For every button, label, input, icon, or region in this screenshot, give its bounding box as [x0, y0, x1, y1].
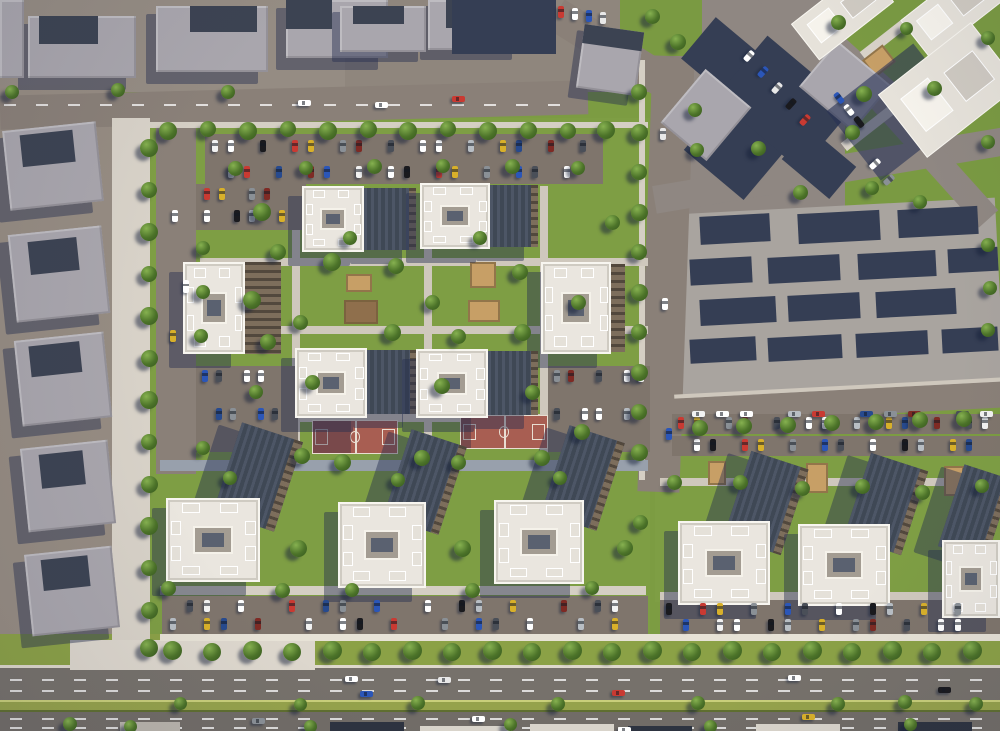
tree [275, 583, 290, 598]
parked-car-detail [436, 143, 441, 145]
parked-car-detail [249, 191, 254, 193]
parked-car [234, 210, 240, 222]
apartment-tower-row2-left-detail [308, 404, 322, 412]
car-top-road-detail [379, 103, 382, 108]
parked-car-detail [221, 621, 226, 623]
district-shadow [689, 336, 756, 363]
tree [345, 583, 359, 597]
car-boulevard-detail [622, 728, 625, 731]
district-shadow [797, 210, 880, 244]
tree [795, 481, 810, 496]
parked-car-detail [425, 603, 430, 605]
car-boulevard [438, 677, 451, 683]
car-nw-lot-detail [586, 13, 591, 15]
vertical-slab-left-detail [219, 336, 231, 347]
playground-2 [344, 300, 378, 324]
tree [617, 540, 633, 556]
playground-1 [346, 274, 372, 292]
parked-car [436, 140, 442, 152]
car-vroad-detail [660, 131, 665, 133]
apartment-tower-br-2-detail-detail [833, 558, 855, 571]
tree [363, 643, 381, 661]
parked-car [388, 140, 394, 152]
parked-car [710, 439, 716, 451]
parked-car-detail [955, 606, 960, 608]
parked-car-detail [356, 143, 361, 145]
tree [141, 434, 157, 450]
apartment-tower-row2-right-detail [457, 404, 471, 412]
car-nw-lot [572, 8, 578, 20]
apartment-tower-br-1-detail [756, 569, 767, 583]
apartment-tower-br-2-detail [851, 590, 869, 599]
tree [228, 161, 243, 176]
tree [163, 641, 182, 660]
parked-car [516, 140, 522, 152]
apartment-tower-br-1-detail [694, 526, 712, 536]
parked-car [904, 619, 910, 631]
tree [141, 476, 158, 493]
slab-row2-right-detail [531, 351, 538, 415]
car-tr-diag2-detail [873, 160, 878, 165]
parked-car-detail [595, 603, 600, 605]
parked-car-detail [887, 606, 892, 608]
tree [631, 284, 648, 301]
parked-car [854, 417, 860, 429]
parked-car-detail [306, 621, 311, 623]
parked-car-detail [734, 622, 739, 624]
parked-car-detail [391, 621, 396, 623]
tree [223, 471, 237, 485]
apartment-tower-row2-left-detail [355, 388, 363, 400]
tree [294, 698, 307, 711]
vertical-slab-left-detail-detail [207, 300, 221, 315]
parked-car-detail [612, 603, 617, 605]
apartment-tower-br-1-detail [683, 569, 694, 583]
parked-car-detail [279, 213, 284, 215]
car-nw-lot-detail [600, 15, 605, 17]
tree [411, 696, 425, 710]
parked-car-detail [548, 143, 553, 145]
parked-car-detail [404, 169, 409, 171]
tree [5, 85, 19, 99]
apartment-tower-br-3-detail [975, 603, 986, 612]
tree [843, 643, 861, 661]
tree [831, 15, 846, 30]
car-tr-diag2-detail [887, 176, 892, 181]
tree [323, 641, 342, 660]
parked-car [548, 140, 554, 152]
apartment-tower-br-2-detail [814, 590, 832, 599]
parked-car-detail [554, 411, 559, 413]
gray-building-nw-2-detail [190, 6, 257, 32]
parked-car [612, 600, 618, 612]
tree [200, 121, 216, 137]
tree [915, 485, 930, 500]
tree [203, 643, 221, 661]
parked-car [292, 140, 298, 152]
left-column-building-5 [24, 546, 120, 637]
tree [904, 718, 917, 731]
tree [571, 161, 585, 175]
apartment-tower-row2-left-detail [308, 353, 322, 361]
apartment-tower-bottom-2-detail [412, 525, 422, 540]
apartment-tower-row2-left-detail-detail [323, 377, 340, 388]
parked-car [921, 603, 927, 615]
parked-car [716, 411, 729, 417]
parked-car [717, 619, 723, 631]
car-nw-lot-detail [558, 9, 563, 11]
tree [631, 164, 647, 180]
parked-car-detail [568, 373, 573, 375]
car-nw-lot [586, 10, 592, 22]
tree [436, 159, 450, 173]
parked-car [279, 210, 285, 222]
parked-car-detail [742, 442, 747, 444]
parked-car [425, 600, 431, 612]
tree [249, 385, 263, 399]
parked-car-detail [870, 442, 875, 444]
tree [733, 475, 748, 490]
parked-car-detail [532, 169, 537, 171]
tree [293, 315, 308, 330]
tree [883, 641, 902, 660]
car-tr-lot-detail [845, 106, 850, 111]
parked-car [308, 140, 314, 152]
apartment-tower-row1-left-detail-detail [326, 214, 340, 224]
apartment-tower-bottom-3-detail [570, 523, 580, 537]
apartment-tower-br-1-detail [756, 544, 767, 558]
apartment-tower-br-2-detail [876, 546, 887, 560]
apartment-tower-row1-right-detail-detail [447, 211, 463, 221]
walk-bottom-left [70, 640, 315, 670]
district-shadow [767, 254, 840, 284]
vertical-slab-left-detail [219, 268, 231, 279]
parked-car [442, 618, 448, 630]
parked-car [717, 603, 723, 615]
parked-car-detail [500, 143, 505, 145]
apartment-tower-bottom-1-detail [220, 503, 238, 513]
rooftop-sliver [628, 726, 692, 731]
car-top-road [298, 100, 311, 106]
parked-car-detail [324, 169, 329, 171]
tree [196, 285, 210, 299]
parked-car-detail [785, 606, 790, 608]
parked-car [870, 603, 876, 615]
tree [451, 329, 466, 344]
tree [63, 717, 77, 731]
vertical-slab-right-detail [581, 336, 594, 347]
tree [981, 238, 995, 252]
tree [956, 411, 972, 427]
parked-car [980, 411, 993, 417]
parked-car-detail [493, 621, 498, 623]
apartment-tower-br-1-detail-detail [713, 556, 735, 570]
tree [454, 540, 471, 557]
car-boulevard [472, 716, 485, 722]
parked-car-detail [357, 621, 362, 623]
parked-car [340, 618, 346, 630]
tree [360, 121, 377, 138]
vertical-slab-left-detail [235, 315, 242, 331]
apartment-tower-bottom-3-detail [546, 505, 563, 515]
parked-car-detail [838, 442, 843, 444]
gray-building-nw-3-detail [286, 0, 332, 29]
parked-car-detail [340, 621, 345, 623]
parked-car-detail [864, 412, 867, 417]
parked-car-detail [934, 420, 939, 422]
parked-car [870, 619, 876, 631]
parked-car-detail [244, 169, 249, 171]
parked-car-detail [870, 606, 875, 608]
parked-car-detail [785, 622, 790, 624]
rooftop-sliver [420, 726, 512, 731]
tree [551, 697, 565, 711]
parked-car-detail [561, 603, 566, 605]
vertical-slab-right-detail [545, 287, 553, 303]
apartment-tower-row2-right-detail [476, 368, 484, 380]
parked-car-detail [244, 373, 249, 375]
parked-car-detail [264, 191, 269, 193]
tree [196, 241, 210, 255]
car-tr-diag-detail [761, 68, 766, 73]
parked-car-detail [442, 621, 447, 623]
tree [633, 515, 648, 530]
apartment-tower-br-2 [798, 524, 890, 606]
parked-car [934, 417, 940, 429]
parked-car-detail [292, 143, 297, 145]
apartment-tower-bottom-1-detail [182, 566, 200, 576]
tree [221, 85, 235, 99]
parked-car [758, 439, 764, 451]
apartment-tower-row1-right-detail [460, 187, 473, 194]
parked-car-detail [582, 411, 587, 413]
parked-car-detail [816, 412, 819, 417]
vertical-slab-left [183, 262, 245, 354]
tree [534, 450, 550, 466]
apartment-tower-row1-left-detail [306, 204, 313, 215]
tree [631, 324, 647, 340]
apartment-tower-row1-right-detail [479, 201, 487, 212]
apartment-tower-bottom-1-detail [182, 503, 200, 513]
apartment-tower-row1-left-detail [313, 239, 325, 246]
tree [305, 375, 320, 390]
vertical-slab-right-detail [581, 268, 594, 279]
parked-car [532, 166, 538, 178]
tree [141, 350, 158, 367]
vertical-slab-left-detail [194, 268, 206, 279]
apartment-tower-row2-right-detail [420, 389, 428, 401]
tree [304, 720, 317, 731]
parked-car [918, 439, 924, 451]
parked-car [790, 439, 796, 451]
parked-car-detail [612, 621, 617, 623]
car-boulevard-detail [442, 678, 445, 683]
parked-car-detail [216, 411, 221, 413]
vertical-slab-right-detail [600, 315, 608, 331]
tree [603, 643, 621, 661]
apartment-tower-br-2-detail [851, 529, 869, 538]
parked-car [170, 618, 176, 630]
parked-car [726, 417, 732, 429]
road-boulevard-upper [0, 668, 1000, 702]
apartment-tower-bottom-2-detail-detail [371, 538, 392, 552]
parked-car [902, 439, 908, 451]
parked-car [306, 618, 312, 630]
parked-car-detail [255, 621, 260, 623]
tree [923, 643, 941, 661]
tree [927, 81, 942, 96]
tree [141, 182, 157, 198]
apartment-tower-row2-left-detail [355, 367, 363, 379]
tree [174, 697, 187, 710]
car-left-street-detail [183, 284, 188, 287]
parked-car-detail [955, 622, 960, 624]
parked-car [742, 439, 748, 451]
gray-building-nw-edge [0, 0, 24, 78]
parked-car-detail [204, 603, 209, 605]
tree [253, 203, 271, 221]
parked-car [388, 166, 394, 178]
tree [505, 159, 520, 174]
apartment-tower-br-2-detail [803, 546, 814, 560]
basketball-court-left-detail [350, 431, 360, 443]
tree [399, 122, 417, 140]
parked-car [244, 166, 250, 178]
parked-car [886, 417, 892, 429]
apartment-tower-br-1-detail [705, 549, 744, 578]
apartment-tower-bottom-3-detail [499, 523, 509, 537]
tree [831, 697, 845, 711]
tree [440, 121, 456, 137]
tree [196, 441, 210, 455]
tree [290, 540, 307, 557]
parked-car-detail [420, 143, 425, 145]
apartment-tower-row2-left-detail [336, 404, 350, 412]
parked-car [468, 140, 474, 152]
car-tr-diag-detail [747, 52, 752, 57]
left-column-building-1 [2, 121, 104, 210]
parked-car-detail [726, 420, 731, 422]
car-boulevard [788, 675, 801, 681]
apartment-tower-bottom-1-detail [245, 546, 256, 560]
tree [803, 641, 822, 660]
tree [343, 231, 357, 245]
tree [898, 695, 912, 709]
parked-car [356, 140, 362, 152]
parked-car-detail [388, 169, 393, 171]
tree [294, 448, 310, 464]
tree [140, 391, 158, 409]
parked-car [836, 603, 842, 615]
parked-car-detail [822, 442, 827, 444]
apartment-tower-bottom-2-detail [389, 507, 406, 517]
car-tr-lot-detail [835, 94, 840, 99]
apartment-tower-br-1 [678, 521, 770, 605]
parked-car [822, 439, 828, 451]
parked-car [955, 619, 961, 631]
parked-car-detail [966, 442, 971, 444]
parked-car [212, 140, 218, 152]
parked-car [812, 411, 825, 417]
tree [512, 264, 528, 280]
apartment-tower-br-3-detail [990, 561, 996, 574]
district-shadow [699, 296, 776, 326]
parked-car-detail [228, 143, 233, 145]
car-left-street-detail [172, 213, 177, 215]
left-column-building-4 [20, 440, 116, 533]
parked-car [340, 140, 346, 152]
parked-car [734, 619, 740, 631]
parked-car [244, 370, 250, 382]
apartment-tower-bottom-1-detail [171, 546, 182, 560]
left-column-building-1-detail [20, 130, 76, 167]
parked-car [788, 411, 801, 417]
parked-car [683, 619, 689, 631]
lane-dash-2 [10, 690, 995, 692]
apartment-tower-bottom-1-detail-detail [202, 533, 225, 547]
tree [856, 86, 872, 102]
tree [159, 122, 177, 140]
left-column-building-3 [14, 332, 112, 427]
tree [900, 22, 913, 35]
tree [403, 641, 422, 660]
parked-car [484, 166, 490, 178]
parked-car-detail [853, 622, 858, 624]
parked-car-detail [527, 621, 532, 623]
parked-car-detail [886, 420, 891, 422]
parked-car [950, 439, 956, 451]
tree [443, 643, 461, 661]
apartment-tower-bottom-1-detail [220, 566, 238, 576]
tree [963, 641, 982, 660]
parked-car [884, 411, 897, 417]
parked-car-detail [984, 412, 987, 417]
parked-car [700, 603, 706, 615]
apartment-tower-br-1-detail [731, 589, 749, 599]
apartment-tower-row1-right-detail [460, 236, 473, 243]
parked-car-detail [921, 606, 926, 608]
apartment-tower-bottom-3-detail [510, 568, 527, 578]
vertical-slab-right-detail [554, 268, 567, 279]
tree [691, 696, 705, 710]
apartment-tower-row1-right-detail [440, 205, 469, 227]
parked-car-detail [902, 442, 907, 444]
tree [704, 720, 717, 731]
rooftop-sliver [530, 724, 614, 731]
parked-car [624, 408, 630, 420]
district-shadow [875, 288, 956, 318]
tree [643, 641, 662, 660]
parked-car-detail [212, 143, 217, 145]
parked-car [500, 140, 506, 152]
tree [388, 258, 404, 274]
parked-car [596, 370, 602, 382]
parked-car-detail [806, 420, 811, 422]
apartment-tower-bottom-2-detail [343, 552, 353, 567]
apartment-tower-bottom-1-detail [245, 521, 256, 535]
white-building-tr-2-detail [916, 4, 954, 41]
parked-car-detail [476, 603, 481, 605]
tree [912, 412, 928, 428]
parked-car [476, 618, 482, 630]
parked-car [527, 618, 533, 630]
parked-car-detail [683, 622, 688, 624]
tree [605, 215, 620, 230]
parked-car-detail [666, 606, 671, 608]
apartment-tower-br-1-detail [731, 526, 749, 536]
tree [243, 291, 261, 309]
apartment-tower-row2-right-detail [457, 354, 471, 362]
